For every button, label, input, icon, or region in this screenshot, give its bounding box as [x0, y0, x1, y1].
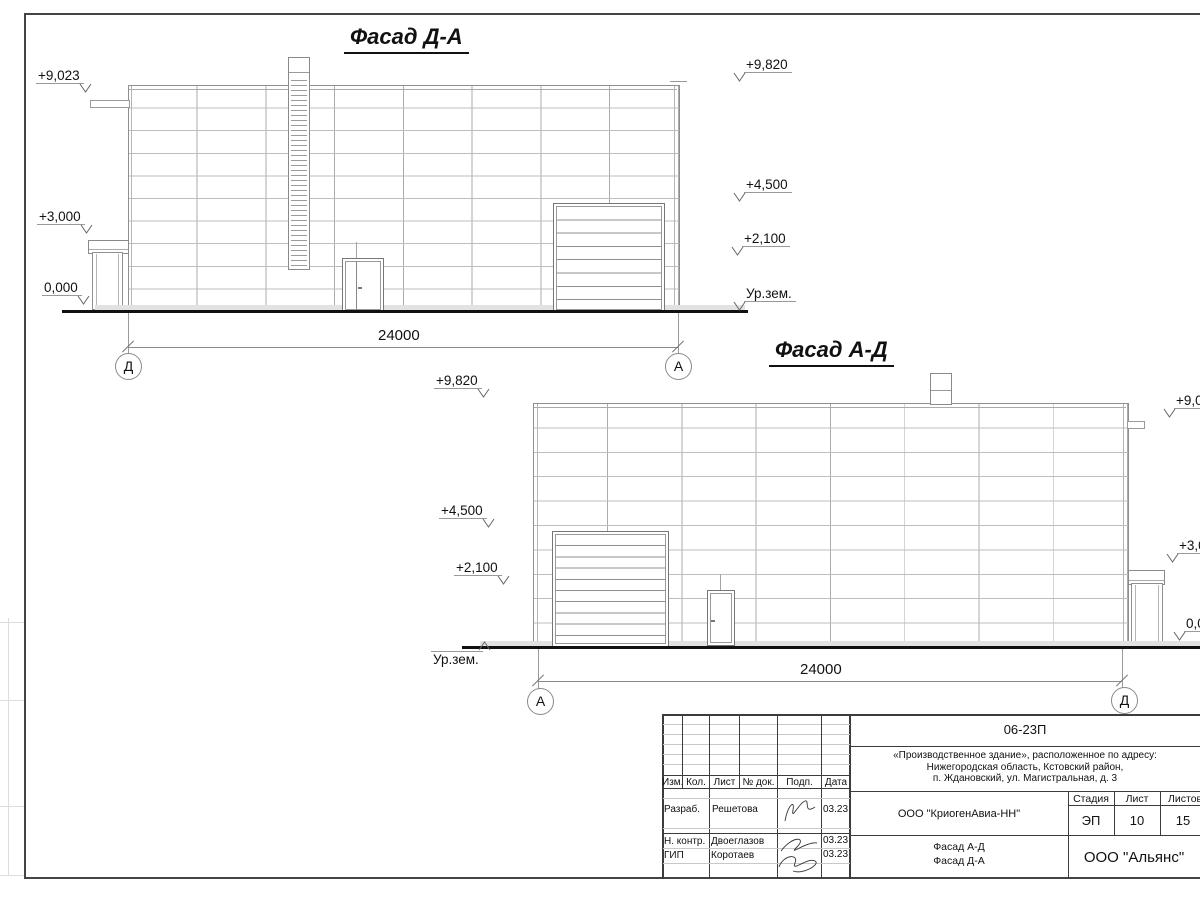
tb-header: Дата: [822, 777, 850, 788]
signature: [779, 793, 821, 829]
entrance-door: [707, 590, 735, 646]
drawing-name-line: Фасад А-Д: [850, 841, 1068, 853]
dimension-line: [538, 681, 1122, 682]
elevation-value: 0,000: [1184, 616, 1200, 632]
wall-edge-line: [674, 86, 675, 310]
tb-line: [1068, 805, 1200, 806]
elevation-value: +9,820: [434, 373, 482, 389]
elevation-value: +9,023: [36, 68, 84, 84]
tb-date: 03.23: [823, 849, 848, 860]
margin-stamp-line: [0, 622, 24, 623]
tb-date: 03.23: [823, 835, 848, 846]
door-frame: [345, 261, 381, 310]
elevation-mark: +4,500: [744, 177, 792, 193]
elevation-mark: +9,023: [36, 68, 84, 84]
axis-bubble: А: [527, 688, 554, 715]
elevation-value: +9,820: [744, 57, 792, 73]
tb-line: [663, 828, 850, 829]
dimension-value: 24000: [800, 661, 842, 678]
tb-line: [850, 746, 1200, 747]
elevation-mark: +9,820: [434, 373, 482, 389]
project-address-line: Нижегородская область, Кстовский район,: [850, 762, 1200, 773]
canopy-line: [1129, 580, 1164, 581]
elevation-arrow-icon: [1173, 631, 1186, 641]
elevation-arrow-icon: [79, 83, 92, 93]
sectional-gate: [553, 203, 665, 313]
porch-posts: [1135, 585, 1159, 645]
chimney: [930, 373, 952, 405]
wall-edge-line: [131, 86, 132, 310]
ladder-rungs: [291, 76, 307, 267]
porch: [92, 252, 123, 310]
elevation-mark: +4,500: [439, 503, 487, 519]
gate-slats: [556, 206, 662, 310]
elevation-mark: +9,023: [1174, 393, 1200, 409]
extension-line: [1122, 649, 1123, 691]
elevation-mark: 0,000: [42, 280, 82, 296]
frame-left: [24, 13, 26, 879]
door-handle: [358, 287, 362, 289]
tb-line: [850, 835, 1200, 836]
tb-role: Н. контр.: [664, 836, 705, 847]
margin-stamp-line: [0, 806, 24, 807]
ground-line: [62, 310, 748, 313]
drawing-name-line: Фасад Д-А: [850, 855, 1068, 867]
elevation-value: Ур.зем.: [431, 651, 483, 667]
parapet-line: [129, 89, 677, 90]
tb-role: ГИП: [664, 850, 684, 861]
tb-role: Разраб.: [664, 804, 700, 815]
tb-line: [850, 791, 1200, 792]
sheets-label: Листов: [1168, 793, 1200, 805]
panel-joint: [356, 242, 357, 258]
wall-edge-line: [1123, 404, 1124, 646]
extension-line: [128, 313, 129, 357]
sheets-total-value: 15: [1160, 813, 1200, 828]
chimney-line: [931, 390, 951, 391]
elevation-value: Ур.зем.: [744, 286, 796, 302]
stage-label: Стадия: [1068, 793, 1114, 805]
axis-bubble: Д: [1111, 687, 1138, 714]
elevation-mark: +3,000: [1177, 538, 1200, 554]
elevation-arrow-icon: [77, 295, 90, 305]
tb-name: Решетова: [712, 804, 758, 815]
tb-header: Изм.: [662, 777, 682, 788]
elevation-value: +9,023: [1174, 393, 1200, 409]
elevation-value: +3,000: [37, 209, 85, 225]
project-address-line: п. Ждановский, ул. Магистральная, д. 3: [850, 773, 1200, 784]
dimension-line: [128, 347, 678, 348]
tb-border: [662, 714, 1200, 716]
wall-visor: [1127, 421, 1145, 429]
tb-line: [709, 714, 710, 879]
extension-line: [678, 313, 679, 357]
frame-bottom: [24, 877, 1200, 879]
door-handle: [711, 620, 715, 622]
elevation-arrow-icon: [733, 72, 746, 82]
elevation-arrow-icon: [80, 224, 93, 234]
drawing-sheet: { "facades": { "top": { "title": "Фасад …: [0, 0, 1200, 900]
entrance-door: [342, 258, 384, 313]
parapet-cap: [670, 81, 687, 82]
elevation-mark: +9,820: [744, 57, 792, 73]
door-frame: [710, 593, 732, 643]
wall-edge-line: [537, 404, 538, 646]
elevation-mark: +3,000: [37, 209, 85, 225]
elevation-arrow-icon: [733, 192, 746, 202]
elevation-value: +3,000: [1177, 538, 1200, 554]
elevation-mark: +2,100: [454, 560, 502, 576]
facade-title: Фасад Д-А: [344, 24, 469, 54]
panel-joint: [720, 574, 721, 590]
axis-bubble: А: [665, 353, 692, 380]
tb-header: Лист: [710, 777, 739, 788]
elevation-mark: +2,100: [742, 231, 790, 247]
wall-visor: [90, 100, 130, 108]
extension-line: [538, 649, 539, 691]
sheet-value: 10: [1114, 813, 1160, 828]
ladder-top-line: [289, 72, 309, 73]
elevation-arrow-icon: [733, 301, 746, 311]
margin-stamp-line: [0, 700, 24, 701]
tb-header: № док.: [740, 777, 777, 788]
tb-header: Кол.: [683, 777, 709, 788]
canopy-line: [89, 249, 128, 250]
elevation-mark: 0,000: [1184, 616, 1200, 632]
stage-value: ЭП: [1068, 813, 1114, 828]
elevation-value: +2,100: [454, 560, 502, 576]
sectional-gate: [552, 531, 669, 647]
elevation-arrow-icon: [731, 246, 744, 256]
ground-level-mark: Ур.зем.: [744, 286, 796, 302]
facade-title: Фасад А-Д: [769, 337, 894, 367]
project-address-line: «Производственное здание», расположенное…: [850, 750, 1200, 761]
signature: [773, 831, 825, 877]
ground-level-mark: Ур.зем.: [431, 651, 483, 667]
parapet-line: [534, 407, 1126, 408]
axis-bubble: Д: [115, 353, 142, 380]
elevation-arrow-icon: [482, 518, 495, 528]
frame-top: [24, 13, 1200, 15]
gate-slats: [555, 534, 666, 644]
porch-posts: [96, 254, 119, 308]
tb-header: Подп.: [778, 777, 821, 788]
ladder: [288, 57, 310, 270]
elevation-arrow-icon: [497, 575, 510, 585]
dimension-value: 24000: [378, 327, 420, 344]
tb-name: Двоеглазов: [711, 836, 764, 847]
elevation-arrow-icon: [1166, 553, 1179, 563]
doc-number: 06-23П: [850, 722, 1200, 737]
elevation-value: 0,000: [42, 280, 82, 296]
elevation-arrow-icon: [1163, 408, 1176, 418]
margin-stamp-line: [8, 618, 9, 876]
elevation-arrow-icon: [477, 388, 490, 398]
tb-date: 03.23: [823, 804, 848, 815]
ground-line: [462, 646, 1200, 649]
tb-name: Коротаев: [711, 850, 754, 861]
tb-line: [663, 798, 850, 799]
porch: [1131, 583, 1163, 647]
margin-stamp-line: [0, 875, 24, 876]
elevation-value: +4,500: [439, 503, 487, 519]
sheet-label: Лист: [1114, 793, 1160, 805]
elevation-value: +2,100: [742, 231, 790, 247]
elevation-value: +4,500: [744, 177, 792, 193]
design-company: ООО "КриогенАвиа-НН": [850, 808, 1068, 820]
elevation-arrow-icon: [478, 641, 491, 651]
door-leaf-divider: [356, 261, 357, 310]
contractor-name: ООО "Альянс": [1068, 849, 1200, 866]
